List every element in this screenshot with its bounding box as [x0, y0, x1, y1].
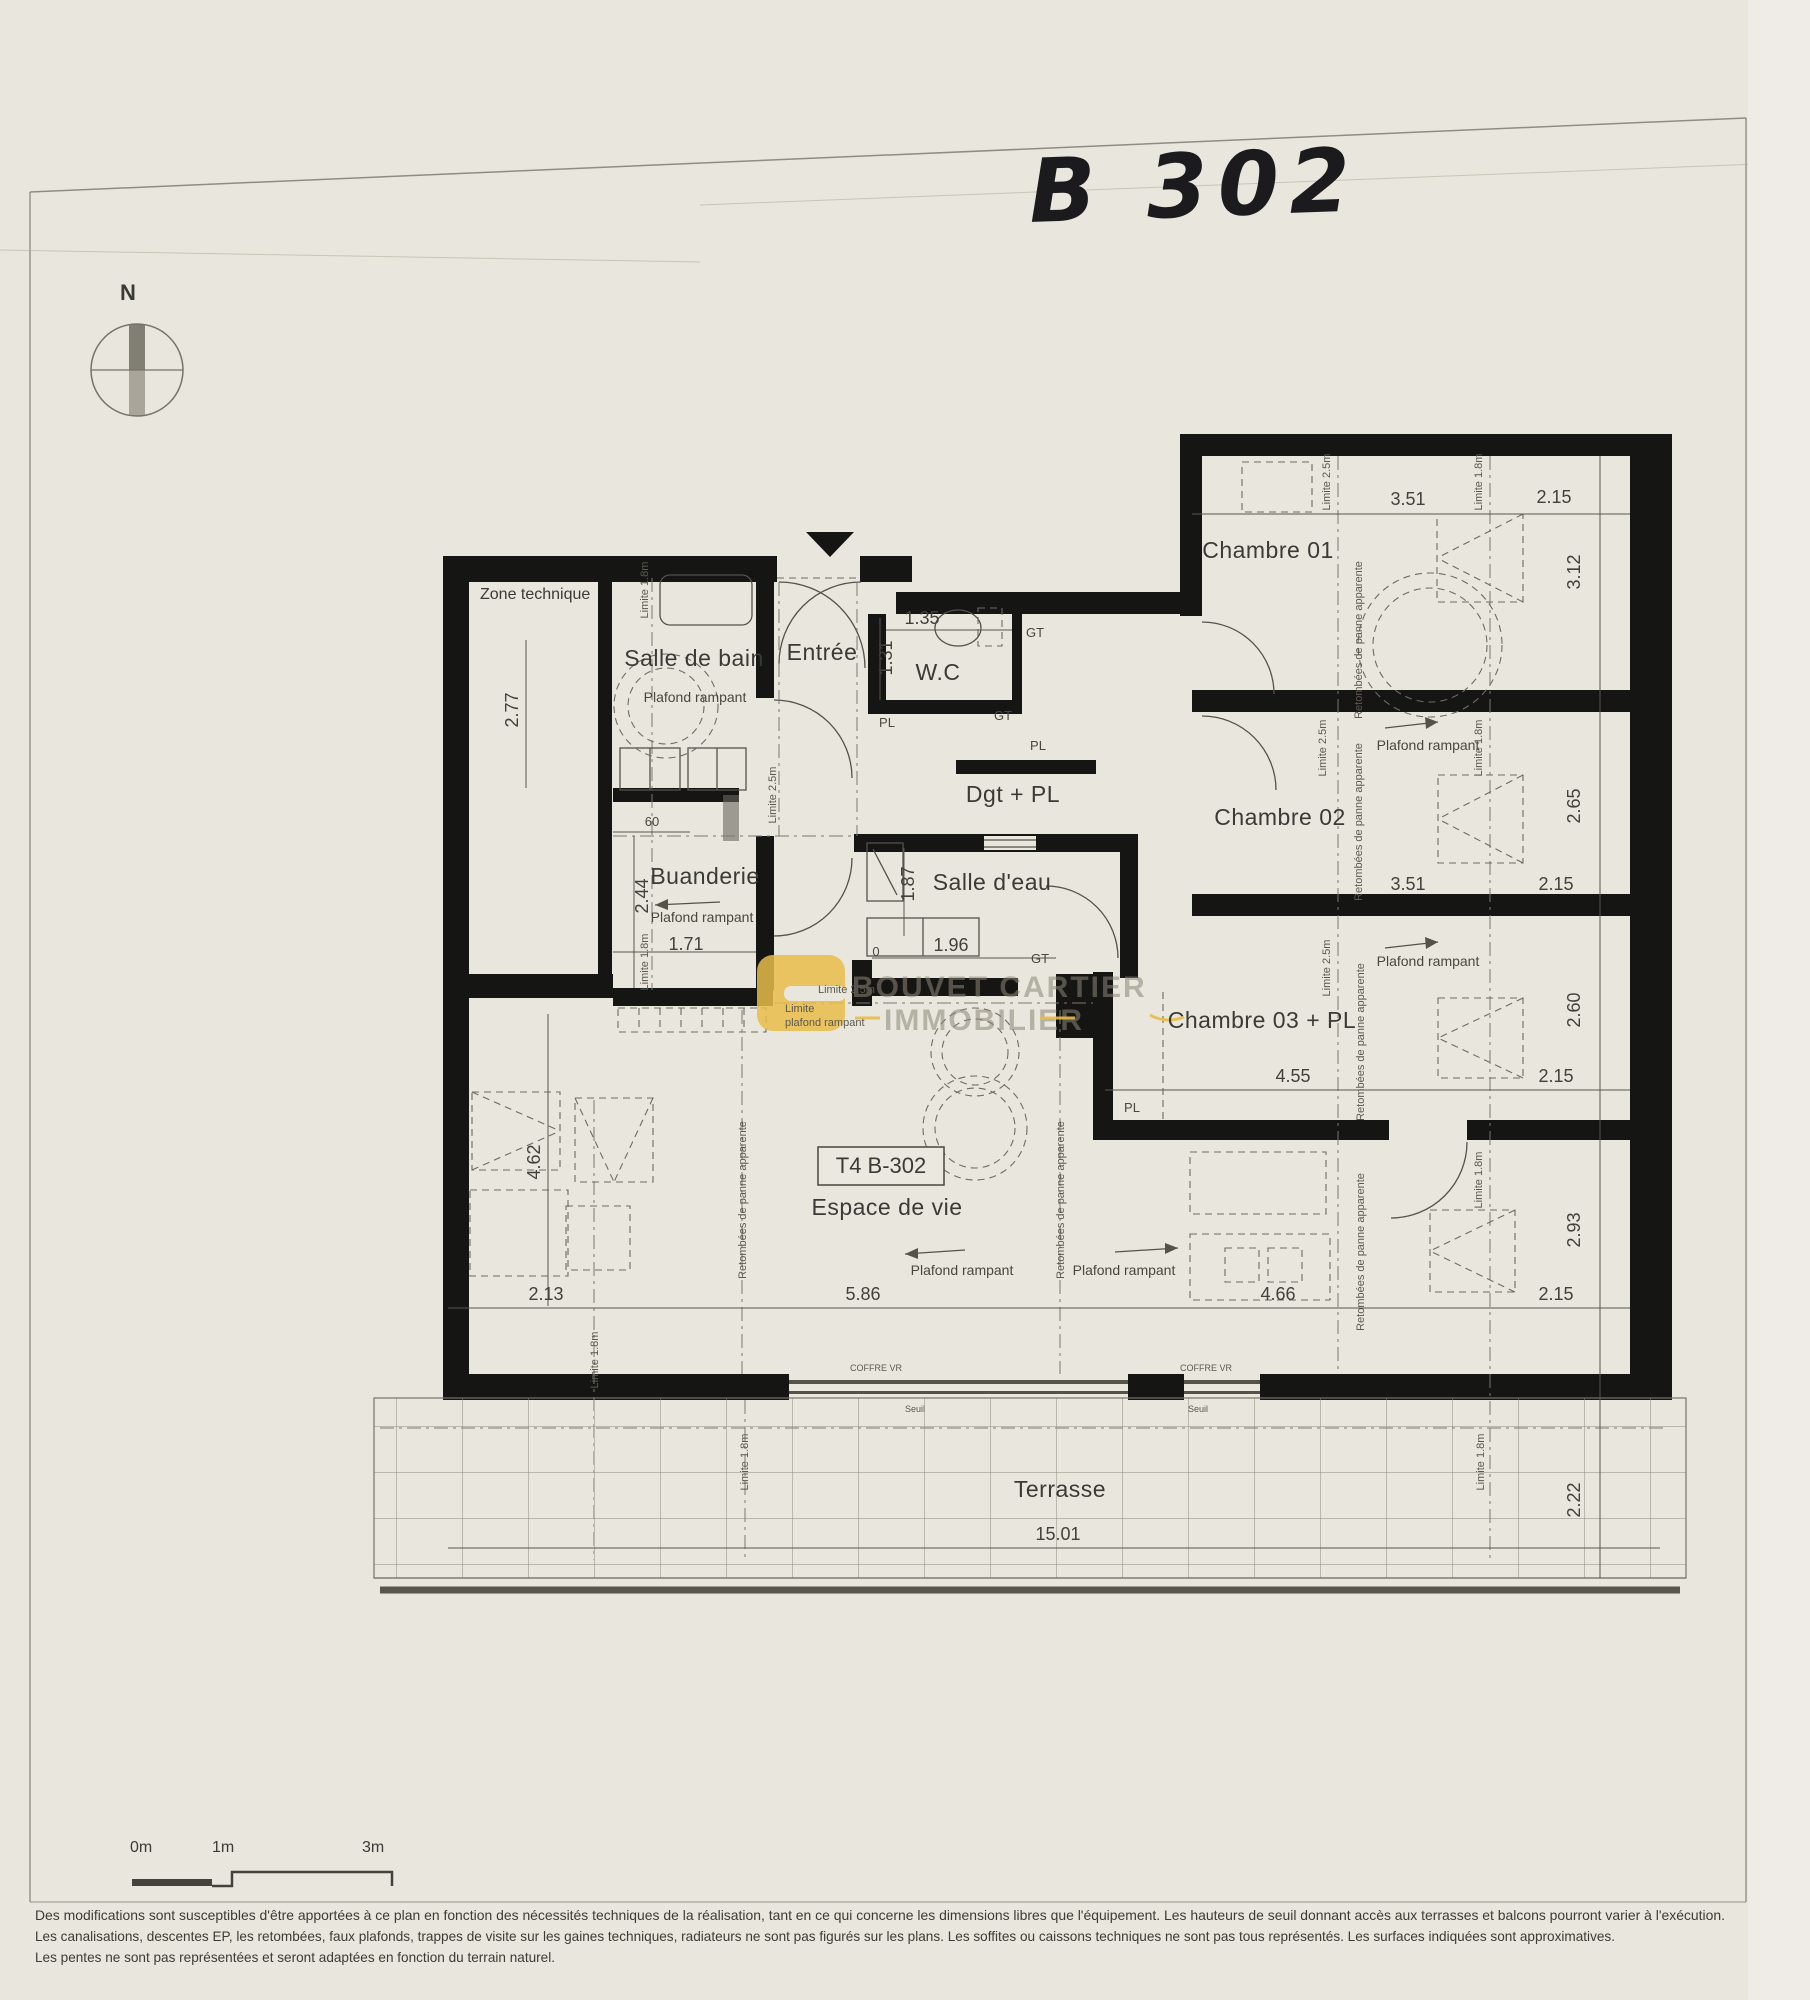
- label-pl-3: PL: [1124, 1100, 1140, 1115]
- watermark-line1: BOUVET CARTIER: [852, 971, 1147, 1004]
- disclaimer: Des modifications sont susceptibles d'êt…: [35, 1907, 1725, 1965]
- dim-ev-215: 2.15: [1538, 1284, 1573, 1304]
- svg-text:Limite 1.8m: Limite 1.8m: [1473, 1152, 1485, 1209]
- dim-sdb-277: 2.77: [502, 692, 522, 727]
- dim-sde-0: 0: [872, 944, 879, 959]
- dim-ev-213: 2.13: [528, 1284, 563, 1304]
- svg-text:Limite 2.5m: Limite 2.5m: [767, 767, 779, 824]
- label-gt-3: GT: [1031, 951, 1049, 966]
- terrace-sliding-doors: [789, 836, 1260, 1394]
- scale-bar: 0m 1m 3m: [130, 1839, 392, 1886]
- compass-north-label: N: [120, 280, 136, 305]
- scale-1m: 1m: [212, 1839, 234, 1856]
- dim-wc-131: 1.31: [876, 640, 896, 675]
- room-label-dgt-pl: Dgt + PL: [966, 781, 1060, 807]
- note-plafond-ch03: Plafond rampant: [1377, 953, 1480, 969]
- dim-ch02-265: 2.65: [1564, 788, 1584, 823]
- svg-text:Limite 2.5m: Limite 2.5m: [1321, 940, 1333, 997]
- label-gt-2: GT: [994, 708, 1012, 723]
- room-label-terrasse: Terrasse: [1014, 1476, 1106, 1502]
- room-label-entree: Entrée: [787, 639, 858, 665]
- svg-text:Limite 1.8m: Limite 1.8m: [639, 934, 651, 991]
- room-label-chambre-01: Chambre 01: [1202, 537, 1334, 563]
- entrance-arrow-icon: [806, 532, 854, 557]
- note-plafond-ev2: Plafond rampant: [1073, 1262, 1176, 1278]
- dim-sde-187: 1.87: [898, 866, 918, 901]
- dim-ch03-215: 2.15: [1538, 1066, 1573, 1086]
- svg-text:Limite 1.8m: Limite 1.8m: [1473, 454, 1485, 511]
- svg-text:plafond rampant: plafond rampant: [785, 1017, 865, 1029]
- scale-0m: 0m: [130, 1839, 152, 1856]
- svg-text:Limite 2.5m: Limite 2.5m: [1317, 720, 1329, 777]
- svg-text:Retombées de panne apparente: Retombées de panne apparente: [1355, 963, 1367, 1121]
- dim-ch03-455: 4.55: [1275, 1066, 1310, 1086]
- label-pl-1: PL: [1030, 738, 1046, 753]
- dim-ev-462: 4.62: [524, 1144, 544, 1179]
- handwritten-title: B 302: [1027, 128, 1362, 243]
- svg-text:Retombées de panne apparente: Retombées de panne apparente: [1353, 743, 1365, 901]
- svg-text:Limite 1.8m: Limite 1.8m: [739, 1434, 751, 1491]
- limite-25-text: Limite 2.5m: [818, 984, 875, 996]
- dim-ch01-312: 3.12: [1564, 554, 1584, 589]
- disclaimer-line3: Les pentes ne sont pas représentées et s…: [35, 1949, 555, 1965]
- room-label-espace-de-vie: Espace de vie: [812, 1194, 963, 1220]
- dim-sde-196: 1.96: [933, 935, 968, 955]
- room-label-chambre-02: Chambre 02: [1214, 804, 1346, 830]
- svg-text:Limite: Limite: [785, 1003, 814, 1015]
- svg-text:Retombées de panne apparente: Retombées de panne apparente: [1353, 561, 1365, 719]
- svg-text:Retombées de panne apparente: Retombées de panne apparente: [1055, 1121, 1067, 1279]
- unit-label-box: T4 B-302: [818, 1147, 944, 1185]
- room-label-chambre-03: Chambre 03 + PL: [1168, 1007, 1356, 1033]
- watermark-line2: IMMOBILIER: [884, 1004, 1084, 1037]
- label-gt-1: GT: [1026, 625, 1044, 640]
- svg-text:Retombées de panne apparente: Retombées de panne apparente: [1355, 1173, 1367, 1331]
- page-margin-right: [1748, 0, 1810, 2000]
- dim-buanderie-244: 2.44: [632, 878, 652, 913]
- note-plafond-ch02: Plafond rampant: [1377, 737, 1480, 753]
- dim-ch03-260: 2.60: [1564, 992, 1584, 1027]
- svg-text:Limite 1.8m: Limite 1.8m: [639, 562, 651, 619]
- svg-text:Limite 1.8m: Limite 1.8m: [589, 1332, 601, 1389]
- dim-buanderie-171: 1.71: [668, 934, 703, 954]
- room-label-salle-de-bain: Salle de bain: [624, 645, 764, 671]
- dim-ch02-215: 2.15: [1538, 874, 1573, 894]
- north-compass-icon: N: [91, 280, 183, 416]
- room-label-wc: W.C: [916, 659, 961, 685]
- dim-ev-466: 4.66: [1260, 1284, 1295, 1304]
- dim-ev-586: 5.86: [845, 1284, 880, 1304]
- svg-text:Limite 2.5m: Limite 2.5m: [1321, 454, 1333, 511]
- room-label-salle-deau: Salle d'eau: [933, 869, 1052, 895]
- note-plafond-buanderie: Plafond rampant: [651, 909, 754, 925]
- note-plafond-sdb: Plafond rampant: [644, 689, 747, 705]
- room-label-buanderie: Buanderie: [650, 863, 759, 889]
- note-plafond-ev1: Plafond rampant: [911, 1262, 1014, 1278]
- dim-ch01-351: 3.51: [1390, 489, 1425, 509]
- label-seuil-2: Seuil: [1188, 1404, 1208, 1414]
- disclaimer-line2: Les canalisations, descentes EP, les ret…: [35, 1928, 1615, 1944]
- svg-text:Retombées de panne apparente: Retombées de panne apparente: [737, 1121, 749, 1279]
- scanned-floor-plan-page: B 302 N: [0, 0, 1810, 2000]
- svg-text:Limite 1.8m: Limite 1.8m: [1475, 1434, 1487, 1491]
- room-label-zone-technique: Zone technique: [480, 586, 590, 603]
- label-seuil-1: Seuil: [905, 1404, 925, 1414]
- dim-sejour-293: 2.93: [1564, 1212, 1584, 1247]
- dim-terrasse-222: 2.22: [1564, 1482, 1584, 1517]
- scale-3m: 3m: [362, 1839, 384, 1856]
- dim-terrasse-1501: 15.01: [1035, 1524, 1080, 1544]
- label-pl-2: PL: [879, 715, 895, 730]
- dim-wc-135: 1.35: [904, 608, 939, 628]
- dim-ch02-351: 3.51: [1390, 874, 1425, 894]
- disclaimer-line1: Des modifications sont susceptibles d'êt…: [35, 1907, 1725, 1923]
- dim-buanderie-60: 60: [645, 814, 659, 829]
- svg-text:Limite 1.8m: Limite 1.8m: [1473, 720, 1485, 777]
- floor-plan-svg: B 302 N: [0, 0, 1810, 2000]
- dim-ch01-215: 2.15: [1536, 487, 1571, 507]
- bathroom-fixtures: [614, 575, 1002, 956]
- label-coffre-vr-1: COFFRE VR: [850, 1363, 903, 1373]
- label-coffre-vr-2: COFFRE VR: [1180, 1363, 1233, 1373]
- unit-label: T4 B-302: [836, 1153, 927, 1178]
